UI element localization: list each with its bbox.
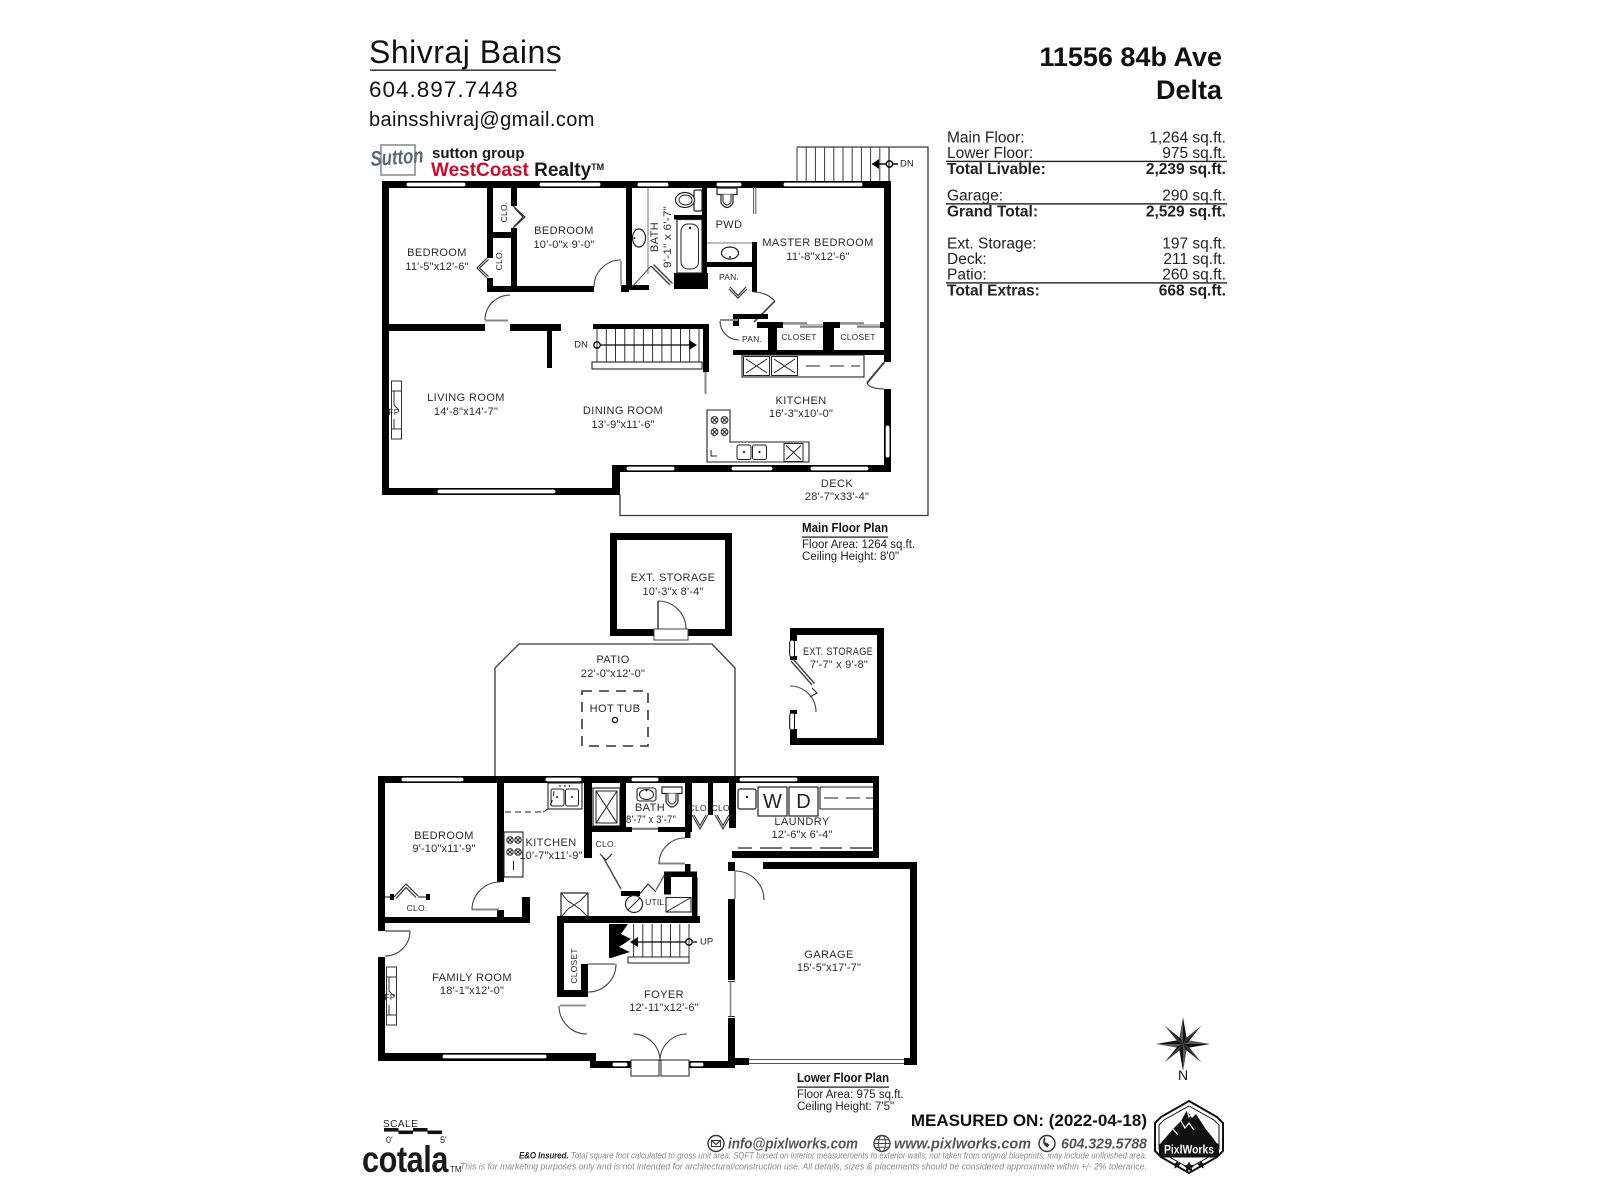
svg-text:Floor Area: 975 sq.ft.: Floor Area: 975 sq.ft. — [797, 1089, 904, 1101]
svg-text:Total Livable:: Total Livable: — [947, 161, 1046, 178]
svg-text:Total Extras:: Total Extras: — [947, 283, 1040, 300]
svg-text:This is for marketing purposes: This is for marketing purposes only and … — [460, 1162, 1147, 1172]
svg-text:GARAGE: GARAGE — [804, 949, 853, 961]
svg-text:14'-8"x14'-7": 14'-8"x14'-7" — [434, 406, 498, 418]
svg-text:12'-6"x 6'-4": 12'-6"x 6'-4" — [771, 829, 832, 841]
svg-text:DECK: DECK — [821, 478, 853, 490]
svg-text:Main Floor:: Main Floor: — [947, 130, 1025, 147]
svg-text:15'-5"x17'-7": 15'-5"x17'-7" — [797, 962, 861, 974]
svg-text:EXT. STORAGE: EXT. STORAGE — [803, 646, 873, 658]
svg-text:12'-11"x12'-6": 12'-11"x12'-6" — [629, 1002, 699, 1014]
svg-text:PWD: PWD — [716, 219, 743, 231]
svg-text:Lower Floor:: Lower Floor: — [947, 145, 1033, 162]
svg-text:DN: DN — [574, 340, 588, 351]
svg-text:LAUNDRY: LAUNDRY — [774, 816, 829, 828]
svg-text:CLOSET: CLOSET — [840, 332, 875, 342]
svg-text:N: N — [1178, 1067, 1188, 1083]
svg-text:PAN.: PAN. — [719, 272, 739, 282]
svg-text:UP: UP — [700, 937, 713, 948]
svg-text:DN: DN — [900, 159, 914, 170]
svg-text:2,239 sq.ft.: 2,239 sq.ft. — [1146, 161, 1226, 178]
svg-text:FP: FP — [388, 407, 399, 417]
svg-text:Ext. Storage:: Ext. Storage: — [947, 236, 1037, 253]
svg-text:UTIL.: UTIL. — [645, 897, 667, 907]
svg-text:1,264 sq.ft.: 1,264 sq.ft. — [1149, 130, 1226, 147]
svg-text:BEDROOM: BEDROOM — [534, 225, 594, 237]
svg-text:BEDROOM: BEDROOM — [407, 247, 467, 259]
svg-text:PATIO: PATIO — [596, 654, 629, 666]
svg-text:16'-3"x10'-0": 16'-3"x10'-0" — [769, 408, 833, 420]
svg-text:PAN.: PAN. — [742, 334, 762, 344]
svg-text:FP: FP — [384, 992, 395, 1002]
svg-text:WestCoast RealtyTM: WestCoast RealtyTM — [431, 160, 604, 181]
svg-text:18'-1"x12'-0": 18'-1"x12'-0" — [440, 985, 504, 997]
svg-text:2,529 sq.ft.: 2,529 sq.ft. — [1146, 204, 1226, 221]
svg-text:Ceiling Height: 8'0": Ceiling Height: 8'0" — [802, 551, 899, 563]
svg-text:CLO.: CLO. — [499, 202, 509, 223]
svg-text:CLO.: CLO. — [596, 839, 617, 849]
svg-text:Main Floor Plan: Main Floor Plan — [802, 521, 888, 535]
svg-text:11'-8"x12'-6": 11'-8"x12'-6" — [786, 251, 849, 263]
svg-text:7'-7" x 9'-8": 7'-7" x 9'-8" — [810, 659, 868, 671]
svg-text:668 sq.ft.: 668 sq.ft. — [1159, 283, 1226, 300]
svg-text:8'-7" x 3'-7": 8'-7" x 3'-7" — [626, 814, 676, 826]
svg-text:22'-0"x12'-0": 22'-0"x12'-0" — [581, 668, 645, 680]
svg-text:CLOSET: CLOSET — [781, 332, 816, 342]
svg-text:260 sq.ft.: 260 sq.ft. — [1162, 267, 1226, 284]
svg-text:975 sq.ft.: 975 sq.ft. — [1162, 145, 1226, 162]
svg-text:CLO.: CLO. — [689, 803, 710, 813]
svg-text:PixlWorks: PixlWorks — [1164, 1145, 1214, 1157]
svg-text:DINING ROOM: DINING ROOM — [583, 405, 663, 417]
svg-text:9'-10"x11'-9": 9'-10"x11'-9" — [412, 843, 475, 855]
svg-text:CLO.: CLO. — [494, 250, 504, 271]
svg-text:Floor Area: 1264 sq.ft.: Floor Area: 1264 sq.ft. — [802, 539, 915, 551]
svg-text:11556 84b Ave: 11556 84b Ave — [1039, 42, 1222, 72]
svg-text:D: D — [796, 791, 810, 813]
svg-text:HOT TUB: HOT TUB — [590, 703, 641, 715]
svg-text:Delta: Delta — [1156, 75, 1223, 105]
svg-text:KITCHEN: KITCHEN — [775, 395, 826, 407]
svg-text:CLO.: CLO. — [407, 903, 428, 913]
svg-text:Lower Floor Plan: Lower Floor Plan — [797, 1071, 889, 1085]
svg-text:BATH: BATH — [649, 222, 661, 252]
svg-text:Patio:: Patio: — [947, 267, 987, 284]
svg-text:Ceiling Height: 7'5": Ceiling Height: 7'5" — [797, 1101, 894, 1113]
svg-text:Shivraj Bains: Shivraj Bains — [369, 34, 562, 70]
svg-text:11'-5"x12'-6": 11'-5"x12'-6" — [405, 261, 468, 273]
svg-text:cotala: cotala — [362, 1139, 449, 1180]
svg-text:290 sq.ft.: 290 sq.ft. — [1162, 188, 1226, 205]
svg-text:MEASURED ON: (2022-04-18): MEASURED ON: (2022-04-18) — [911, 1111, 1147, 1130]
svg-text:KITCHEN: KITCHEN — [525, 837, 576, 849]
svg-text:Grand Total:: Grand Total: — [947, 204, 1038, 221]
svg-text:10'-0"x 9'-0": 10'-0"x 9'-0" — [533, 239, 594, 251]
svg-text:Garage:: Garage: — [947, 188, 1003, 205]
svg-text:FAMILY ROOM: FAMILY ROOM — [432, 972, 512, 984]
svg-text:CLOSET: CLOSET — [569, 948, 579, 983]
svg-text:CLO.: CLO. — [712, 803, 733, 813]
svg-text:13'-9"x11'-6": 13'-9"x11'-6" — [591, 419, 654, 431]
svg-text:E&O Insured. Total square foo: E&O Insured. Total square foot calculate… — [519, 1151, 1147, 1161]
svg-text:BEDROOM: BEDROOM — [414, 830, 474, 842]
svg-text:BATH: BATH — [635, 802, 665, 814]
svg-text:9'-1" x 6'-7": 9'-1" x 6'-7" — [662, 206, 674, 268]
svg-text:MASTER BEDROOM: MASTER BEDROOM — [762, 237, 873, 249]
svg-text:Sutton: Sutton — [370, 144, 424, 171]
svg-text:LIVING ROOM: LIVING ROOM — [427, 392, 505, 404]
svg-text:bainsshivraj@gmail.com: bainsshivraj@gmail.com — [369, 109, 595, 131]
svg-text:28'-7"x33'-4": 28'-7"x33'-4" — [805, 491, 869, 503]
svg-text:Deck:: Deck: — [947, 251, 987, 268]
svg-text:211 sq.ft.: 211 sq.ft. — [1163, 251, 1226, 268]
svg-text:W: W — [763, 791, 782, 813]
svg-text:604.897.7448: 604.897.7448 — [369, 77, 519, 102]
svg-text:FOYER: FOYER — [644, 989, 684, 1001]
svg-text:197 sq.ft.: 197 sq.ft. — [1162, 236, 1226, 253]
svg-text:10'-7"x11'-9": 10'-7"x11'-9" — [519, 850, 582, 862]
svg-text:10'-3"x 8'-4": 10'-3"x 8'-4" — [642, 586, 703, 598]
svg-text:EXT. STORAGE: EXT. STORAGE — [631, 572, 716, 584]
